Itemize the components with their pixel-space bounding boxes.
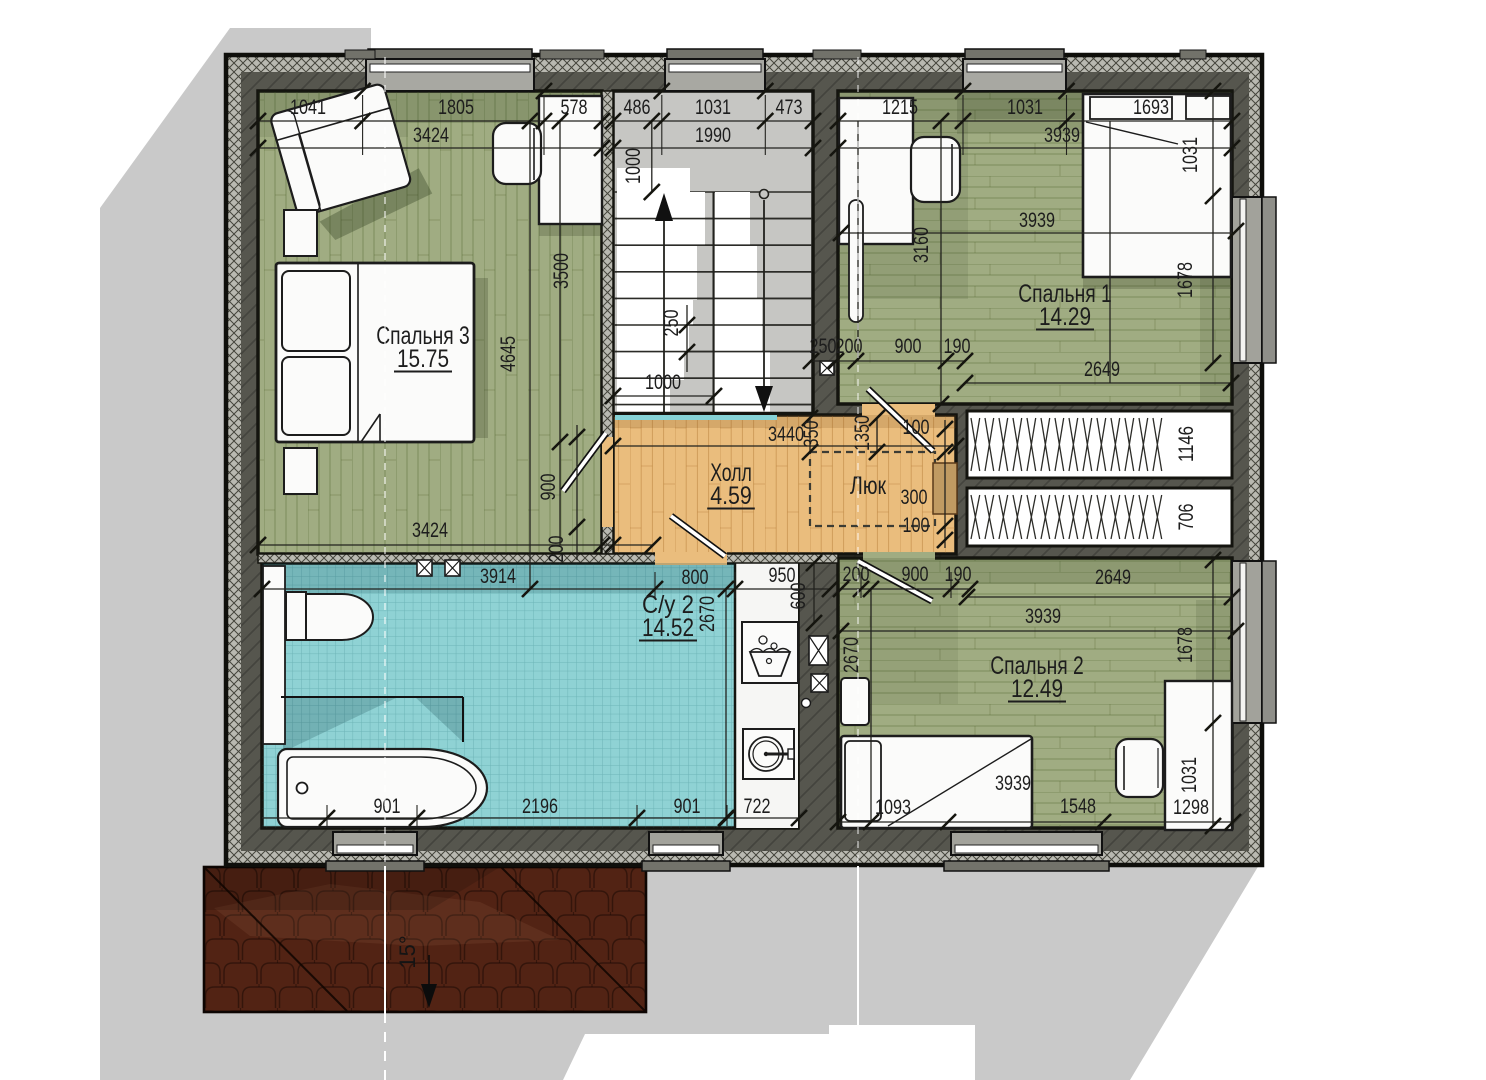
- svg-text:486: 486: [624, 96, 651, 119]
- svg-text:1678: 1678: [1174, 262, 1197, 298]
- svg-text:3440: 3440: [768, 423, 804, 446]
- svg-text:600: 600: [787, 583, 810, 610]
- svg-text:190: 190: [945, 563, 972, 586]
- svg-text:900: 900: [537, 474, 560, 501]
- svg-text:1031: 1031: [1007, 96, 1043, 119]
- svg-text:1805: 1805: [438, 96, 474, 119]
- svg-text:1000: 1000: [645, 371, 681, 394]
- svg-text:4.59: 4.59: [710, 482, 752, 510]
- svg-text:900: 900: [902, 563, 929, 586]
- svg-text:200: 200: [545, 536, 568, 563]
- svg-text:1031: 1031: [1179, 137, 1202, 173]
- svg-text:14.29: 14.29: [1039, 303, 1091, 331]
- svg-text:722: 722: [744, 795, 771, 818]
- svg-text:1548: 1548: [1060, 795, 1096, 818]
- svg-text:3914: 3914: [480, 565, 516, 588]
- svg-text:473: 473: [776, 96, 803, 119]
- svg-text:2670: 2670: [840, 637, 863, 673]
- svg-text:1093: 1093: [875, 796, 911, 819]
- svg-text:250: 250: [660, 310, 683, 337]
- svg-text:250: 250: [810, 335, 837, 358]
- svg-text:3939: 3939: [1025, 605, 1061, 628]
- svg-text:1693: 1693: [1133, 96, 1169, 119]
- svg-text:2670: 2670: [696, 596, 719, 632]
- svg-text:1990: 1990: [695, 124, 731, 147]
- svg-text:300: 300: [901, 486, 928, 509]
- svg-text:200: 200: [843, 563, 870, 586]
- svg-text:2196: 2196: [522, 795, 558, 818]
- svg-text:3939: 3939: [995, 772, 1031, 795]
- svg-text:578: 578: [561, 96, 588, 119]
- svg-text:1298: 1298: [1173, 796, 1209, 819]
- svg-text:1000: 1000: [622, 148, 645, 184]
- svg-text:14.52: 14.52: [642, 614, 694, 642]
- svg-text:3939: 3939: [1044, 124, 1080, 147]
- svg-text:2649: 2649: [1095, 566, 1131, 589]
- svg-text:350: 350: [800, 421, 823, 448]
- svg-text:901: 901: [374, 795, 401, 818]
- svg-text:Люк: Люк: [850, 472, 887, 500]
- svg-text:3500: 3500: [550, 253, 573, 289]
- svg-text:3424: 3424: [413, 124, 449, 147]
- svg-text:900: 900: [895, 335, 922, 358]
- svg-text:2649: 2649: [1084, 358, 1120, 381]
- svg-text:15.75: 15.75: [397, 345, 449, 373]
- svg-text:1215: 1215: [882, 96, 918, 119]
- svg-text:1350: 1350: [851, 415, 874, 451]
- svg-text:3160: 3160: [910, 227, 933, 263]
- svg-text:706: 706: [1175, 504, 1198, 531]
- svg-text:4645: 4645: [497, 336, 520, 372]
- svg-text:1031: 1031: [695, 96, 731, 119]
- svg-text:1031: 1031: [1178, 757, 1201, 793]
- svg-text:901: 901: [674, 795, 701, 818]
- svg-text:1678: 1678: [1174, 627, 1197, 663]
- svg-text:3424: 3424: [412, 519, 448, 542]
- svg-text:1041: 1041: [290, 96, 326, 119]
- svg-text:15°: 15°: [395, 935, 420, 968]
- svg-text:1146: 1146: [1175, 426, 1198, 462]
- svg-text:3939: 3939: [1019, 209, 1055, 232]
- svg-text:800: 800: [682, 566, 709, 589]
- svg-text:190: 190: [944, 335, 971, 358]
- svg-text:100: 100: [903, 416, 930, 439]
- svg-text:100: 100: [903, 514, 930, 537]
- svg-text:12.49: 12.49: [1011, 675, 1063, 703]
